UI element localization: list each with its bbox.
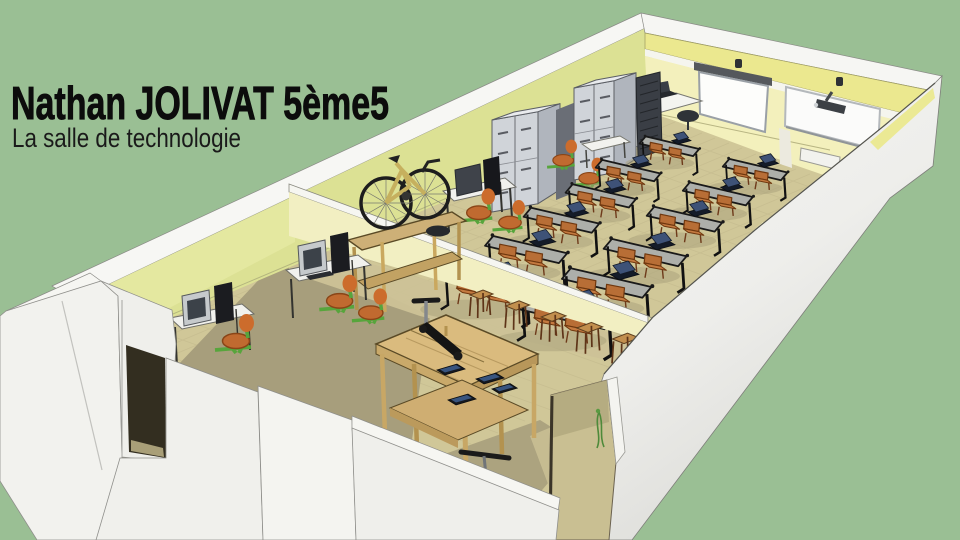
svg-text:Nathan JOLIVAT 5ème5: Nathan JOLIVAT 5ème5: [11, 77, 389, 129]
svg-text:La salle de technologie: La salle de technologie: [12, 123, 241, 153]
